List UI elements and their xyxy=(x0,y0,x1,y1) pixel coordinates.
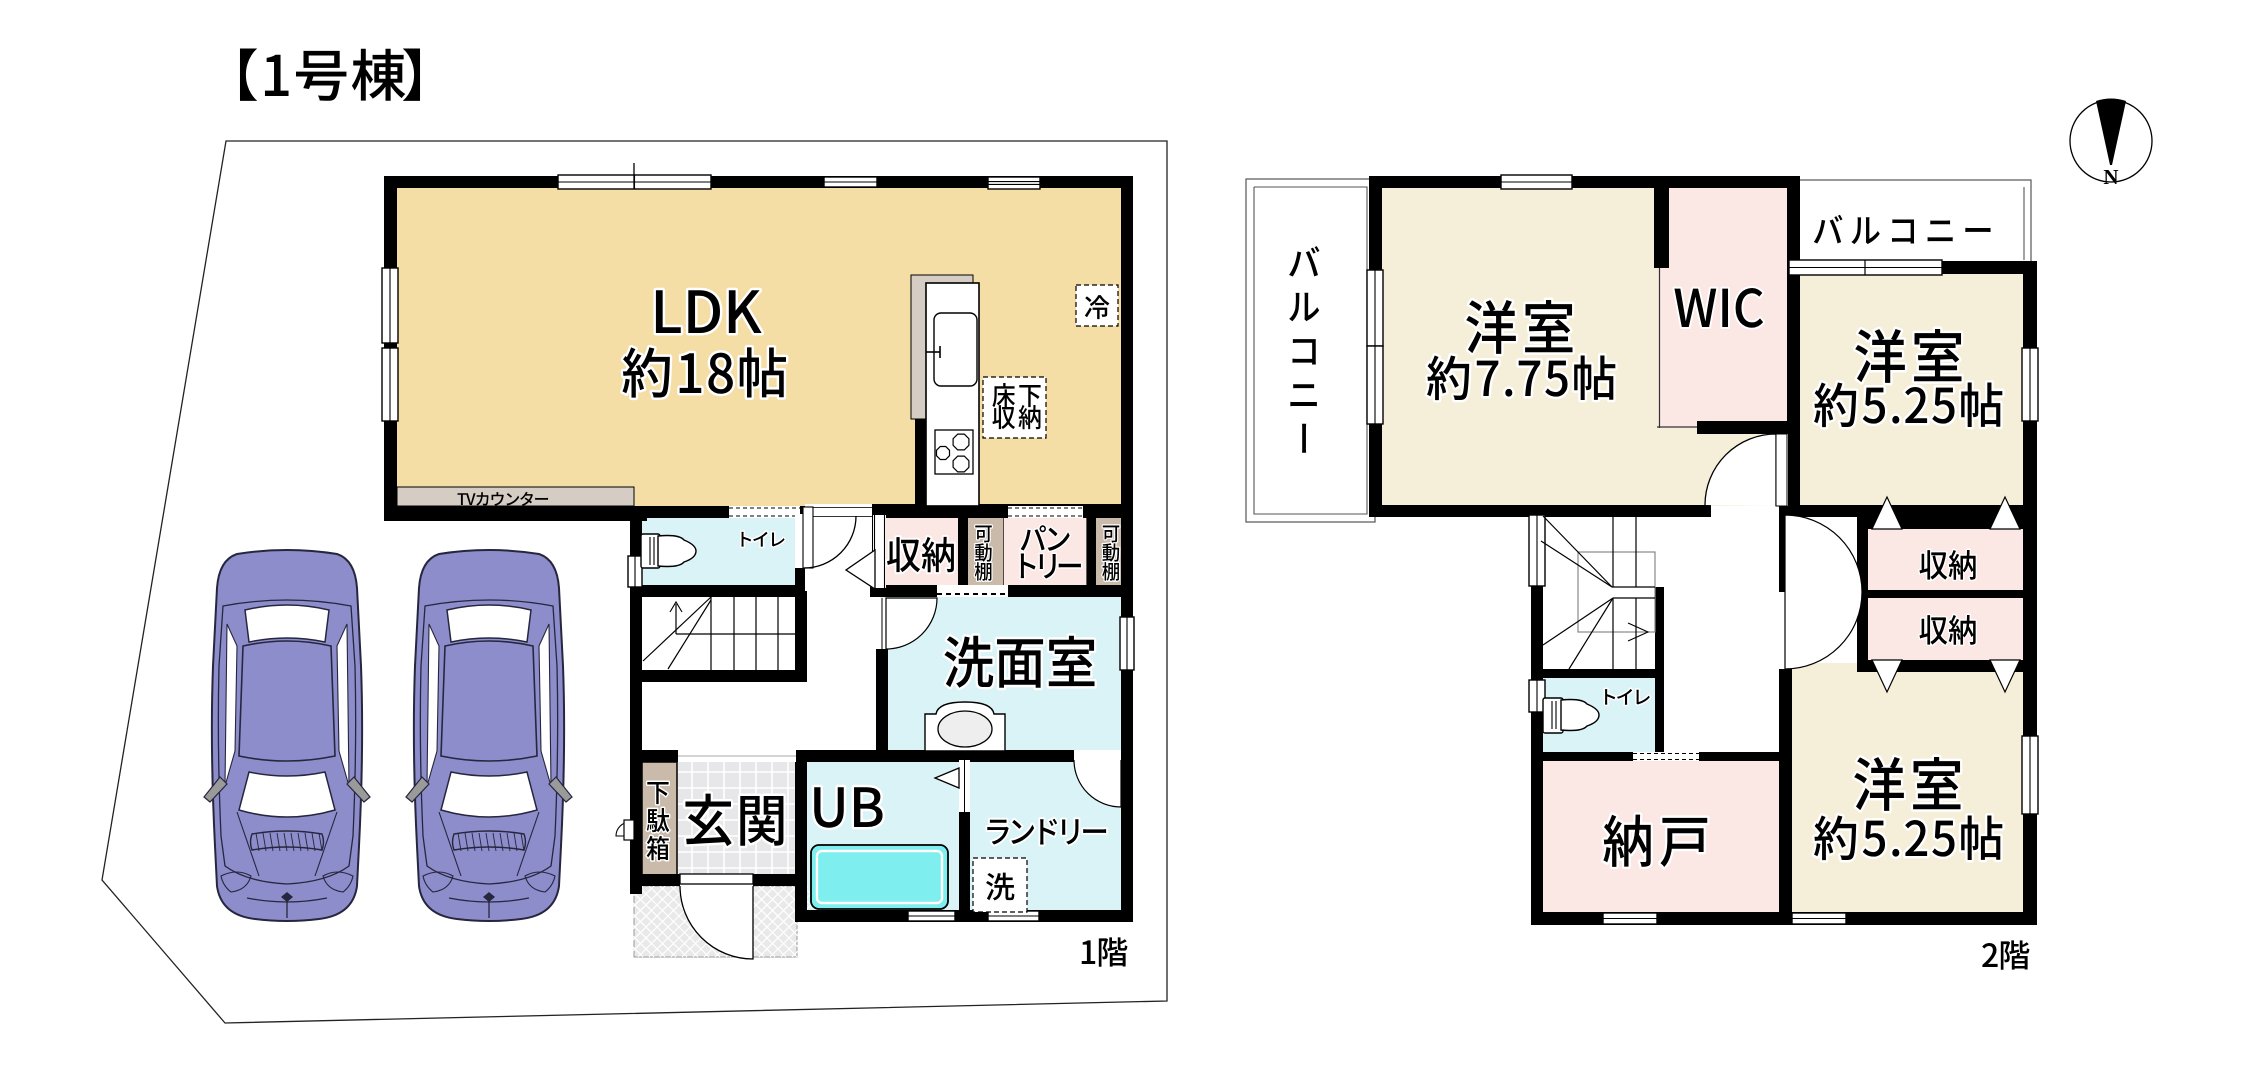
svg-text:N: N xyxy=(2103,165,2118,189)
